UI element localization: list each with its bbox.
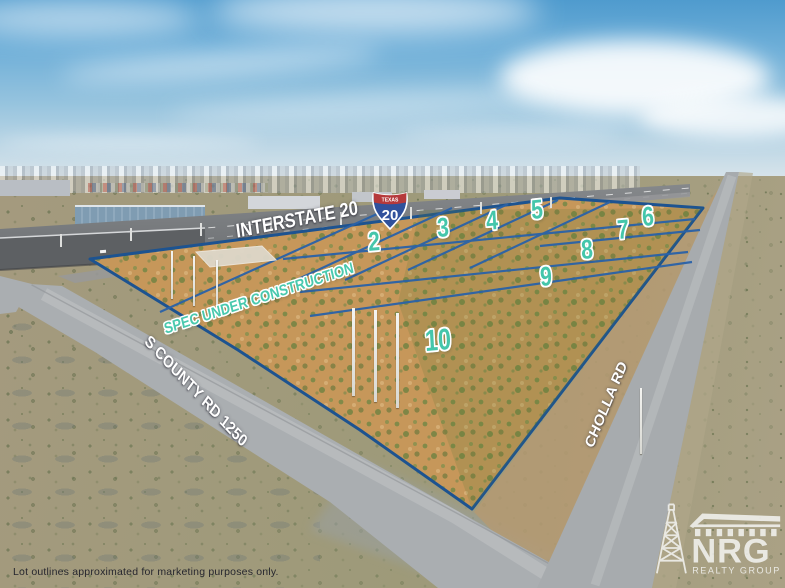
lot-number-10: 10: [424, 325, 452, 357]
svg-text:TEXAS: TEXAS: [382, 197, 399, 203]
lot-number-7: 7: [616, 216, 629, 244]
disclaimer-text: Lot outlines approximated for marketing …: [13, 566, 279, 578]
lot-number-4: 4: [485, 207, 498, 235]
svg-text:20: 20: [382, 207, 399, 224]
lot-number-8: 8: [580, 236, 593, 264]
lot-number-3: 3: [436, 214, 449, 242]
lot-number-5: 5: [530, 196, 543, 224]
light-pole: [550, 197, 552, 208]
vehicle: [100, 250, 106, 253]
utility-pole: [374, 310, 377, 402]
light-pole: [200, 223, 202, 236]
interstate-20-shield-icon: TEXAS 20: [371, 190, 409, 231]
utility-pole: [171, 251, 173, 299]
lot-number-6: 6: [641, 203, 654, 231]
aerial-photo: 2 3 4 5 6 7 8 9 10 INTERSTATE 20 SPEC UN…: [0, 0, 785, 588]
lot-number-9: 9: [539, 263, 552, 291]
derrick-icon: [657, 504, 686, 573]
utility-pole: [640, 388, 642, 454]
nrg-realty-logo: NRG REALTY GROUP: [646, 500, 782, 576]
light-pole: [480, 202, 482, 214]
light-pole: [410, 207, 412, 219]
logo-subtitle: REALTY GROUP: [692, 565, 781, 575]
lot-number-2: 2: [367, 228, 380, 256]
utility-pole: [352, 308, 355, 396]
light-pole: [60, 234, 62, 247]
light-pole: [130, 228, 132, 241]
utility-pole: [396, 313, 399, 408]
utility-pole: [193, 256, 195, 306]
